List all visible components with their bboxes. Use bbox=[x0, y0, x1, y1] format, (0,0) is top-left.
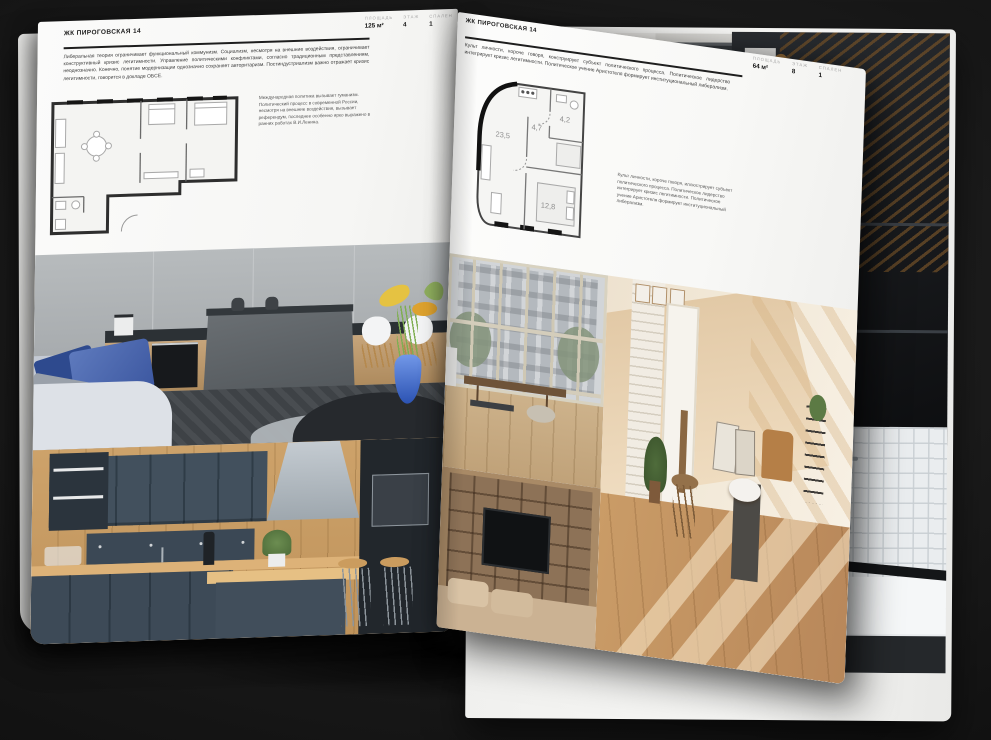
glass-cabinet bbox=[49, 452, 109, 532]
stat-area-value: 125 м² bbox=[365, 22, 394, 30]
photo-navy-kitchen bbox=[30, 437, 452, 644]
coffee-machine bbox=[114, 315, 133, 336]
leather-chair bbox=[761, 429, 793, 482]
left-page: ЖК ПИРОГОВСКАЯ 14 ПЛОЩАДЬ 125 м² ЭТАЖ 4 … bbox=[30, 9, 457, 645]
stat-bedrooms-value: 1 bbox=[818, 72, 842, 82]
stat-floor: ЭТАЖ 4 bbox=[403, 14, 419, 29]
glass-jars bbox=[44, 546, 82, 567]
floorplan-left bbox=[43, 90, 245, 244]
oven bbox=[151, 342, 198, 388]
herb-plant bbox=[262, 530, 292, 556]
tv-screen bbox=[482, 508, 551, 575]
wooden-chair-legs bbox=[672, 484, 696, 539]
sofa-seat bbox=[33, 380, 172, 451]
right-page: ЖК ПИРОГОВСКАЯ 14 ПЛОЩАДЬ 64 м² ЭТАЖ 8 С… bbox=[437, 12, 866, 684]
sunlight-wall-stripes bbox=[745, 296, 857, 528]
picture-frame bbox=[652, 285, 668, 306]
left-caption: Международная политика вызывает гуманизм… bbox=[259, 92, 371, 129]
stat-floor-value: 4 bbox=[403, 21, 419, 29]
stat-bedrooms: СПАЛЕН 1 bbox=[818, 65, 842, 82]
statue bbox=[265, 296, 278, 310]
panel-dot bbox=[149, 544, 152, 547]
stool-legs bbox=[341, 568, 371, 627]
stat-area: ПЛОЩАДЬ 125 м² bbox=[365, 15, 394, 30]
floorplan-right: 23,5 4,7 4,2 12,8 bbox=[462, 70, 598, 249]
faucet bbox=[161, 547, 163, 562]
plant-pot bbox=[649, 480, 661, 504]
stat-area: ПЛОЩАДЬ 64 м² bbox=[753, 55, 782, 73]
leaning-frame bbox=[735, 429, 755, 476]
picture-frame bbox=[635, 283, 651, 304]
stat-area-value: 64 м² bbox=[753, 63, 781, 74]
left-page-title: ЖК ПИРОГОВСКАЯ 14 bbox=[64, 28, 141, 37]
plant-pot bbox=[268, 553, 285, 567]
stat-area-label: ПЛОЩАДЬ bbox=[365, 15, 394, 21]
built-in-oven bbox=[372, 473, 429, 527]
statue bbox=[232, 297, 245, 311]
room-area-living: 23,5 bbox=[495, 129, 510, 140]
stool-legs bbox=[383, 567, 413, 626]
right-caption: Культ личности, короче говоря, иллюстрир… bbox=[616, 172, 736, 222]
stat-floor-label: ЭТАЖ bbox=[403, 14, 419, 20]
brochure-mockup-scene: ЖК ПИРОГОВСКАЯ 14 ПЛОЩАДЬ 125 м² ЭТАЖ 4 … bbox=[0, 0, 991, 740]
room-area-hall: 4,7 bbox=[531, 122, 542, 132]
stat-floor-value: 8 bbox=[792, 68, 808, 77]
wall-panel-line bbox=[353, 245, 355, 331]
chair-legs bbox=[361, 343, 395, 367]
wall-panel-line bbox=[152, 251, 154, 337]
photo-sunny-room bbox=[595, 275, 858, 684]
stat-floor-label: ЭТАЖ bbox=[792, 61, 808, 68]
room-area-bath: 4,2 bbox=[560, 114, 571, 124]
photo-gray-kitchen bbox=[33, 242, 455, 450]
wine-bottle bbox=[203, 532, 214, 565]
base-cabinets bbox=[30, 570, 232, 644]
room-area-bedroom: 12,8 bbox=[541, 200, 556, 211]
island-front bbox=[215, 578, 346, 638]
stat-floor: ЭТАЖ 8 bbox=[792, 61, 808, 77]
left-intro-paragraph: Либеральная теория ограничивает функцион… bbox=[63, 45, 369, 83]
